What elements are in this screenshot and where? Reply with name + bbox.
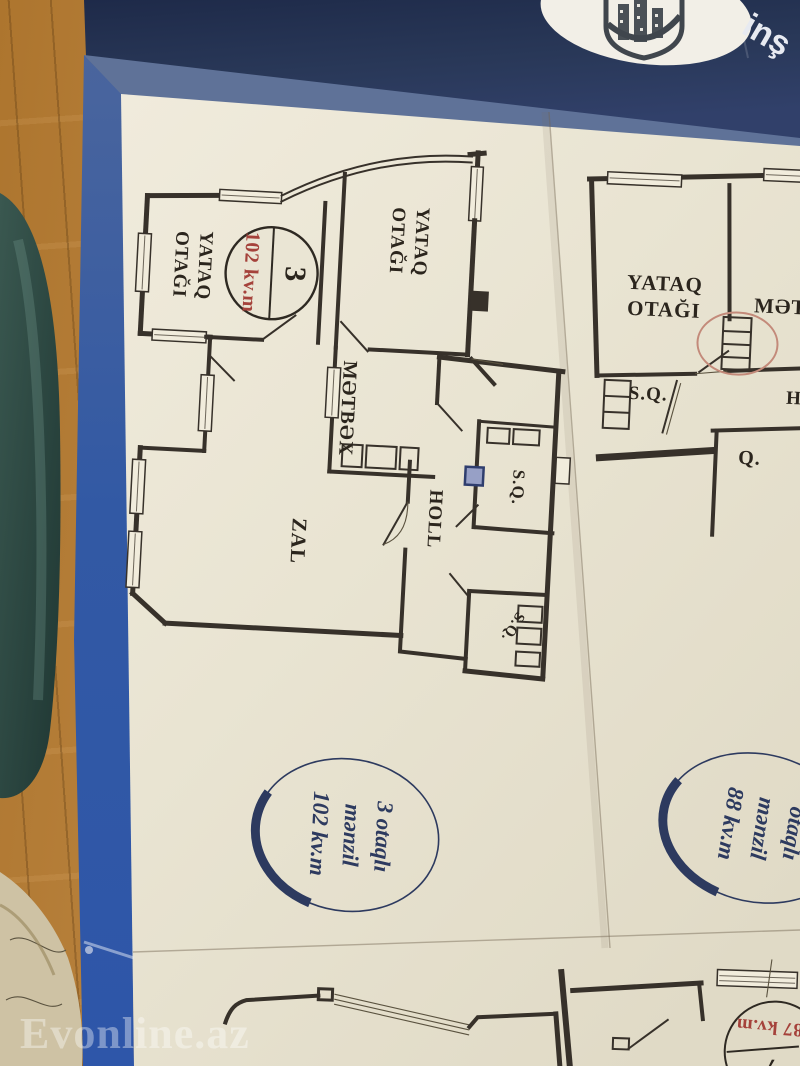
svg-text:OTAĞI: OTAĞI bbox=[385, 207, 410, 275]
right-room-label-hall: HOLL bbox=[786, 388, 800, 412]
svg-text:ZAL: ZAL bbox=[285, 517, 311, 564]
photo-of-floorplan-brochure: inş bbox=[0, 0, 800, 1066]
unit-area-label: 102 kv.m bbox=[238, 231, 264, 313]
room-label-living: ZAL bbox=[285, 517, 311, 564]
svg-text:mənzil: mənzil bbox=[337, 803, 365, 867]
svg-text:3 otaqlı: 3 otaqlı bbox=[369, 800, 398, 873]
svg-text:HOLL: HOLL bbox=[422, 489, 446, 549]
svg-text:102 kv.m: 102 kv.m bbox=[305, 791, 334, 877]
dark-fabric-object bbox=[0, 193, 61, 798]
scuff-mark bbox=[85, 946, 93, 954]
svg-text:OTAĞI: OTAĞI bbox=[168, 230, 193, 298]
right-room-label-bathroom: S.Q. bbox=[628, 383, 668, 406]
watermark-text: Evonline.az bbox=[20, 1009, 250, 1058]
svg-text:7: 7 bbox=[763, 1053, 777, 1066]
scene: inş bbox=[0, 0, 800, 1066]
svg-text:YATAQ: YATAQ bbox=[192, 231, 217, 301]
svg-text:OTAĞI: OTAĞI bbox=[627, 296, 701, 323]
paper-panel bbox=[121, 94, 800, 1066]
right-room-label-kitchen: MƏTBƏX bbox=[754, 293, 800, 321]
blue-square-marker bbox=[465, 467, 484, 486]
svg-text:YATAQ: YATAQ bbox=[409, 207, 434, 277]
svg-text:S.Q.: S.Q. bbox=[508, 469, 529, 505]
svg-text:YATAQ: YATAQ bbox=[627, 270, 704, 297]
room-label-bathroom1: S.Q. bbox=[508, 469, 529, 505]
room-label-hall: HOLL bbox=[422, 489, 446, 549]
right-room-label-q: Q. bbox=[738, 447, 762, 470]
unit-number-label: 3 bbox=[278, 266, 312, 284]
